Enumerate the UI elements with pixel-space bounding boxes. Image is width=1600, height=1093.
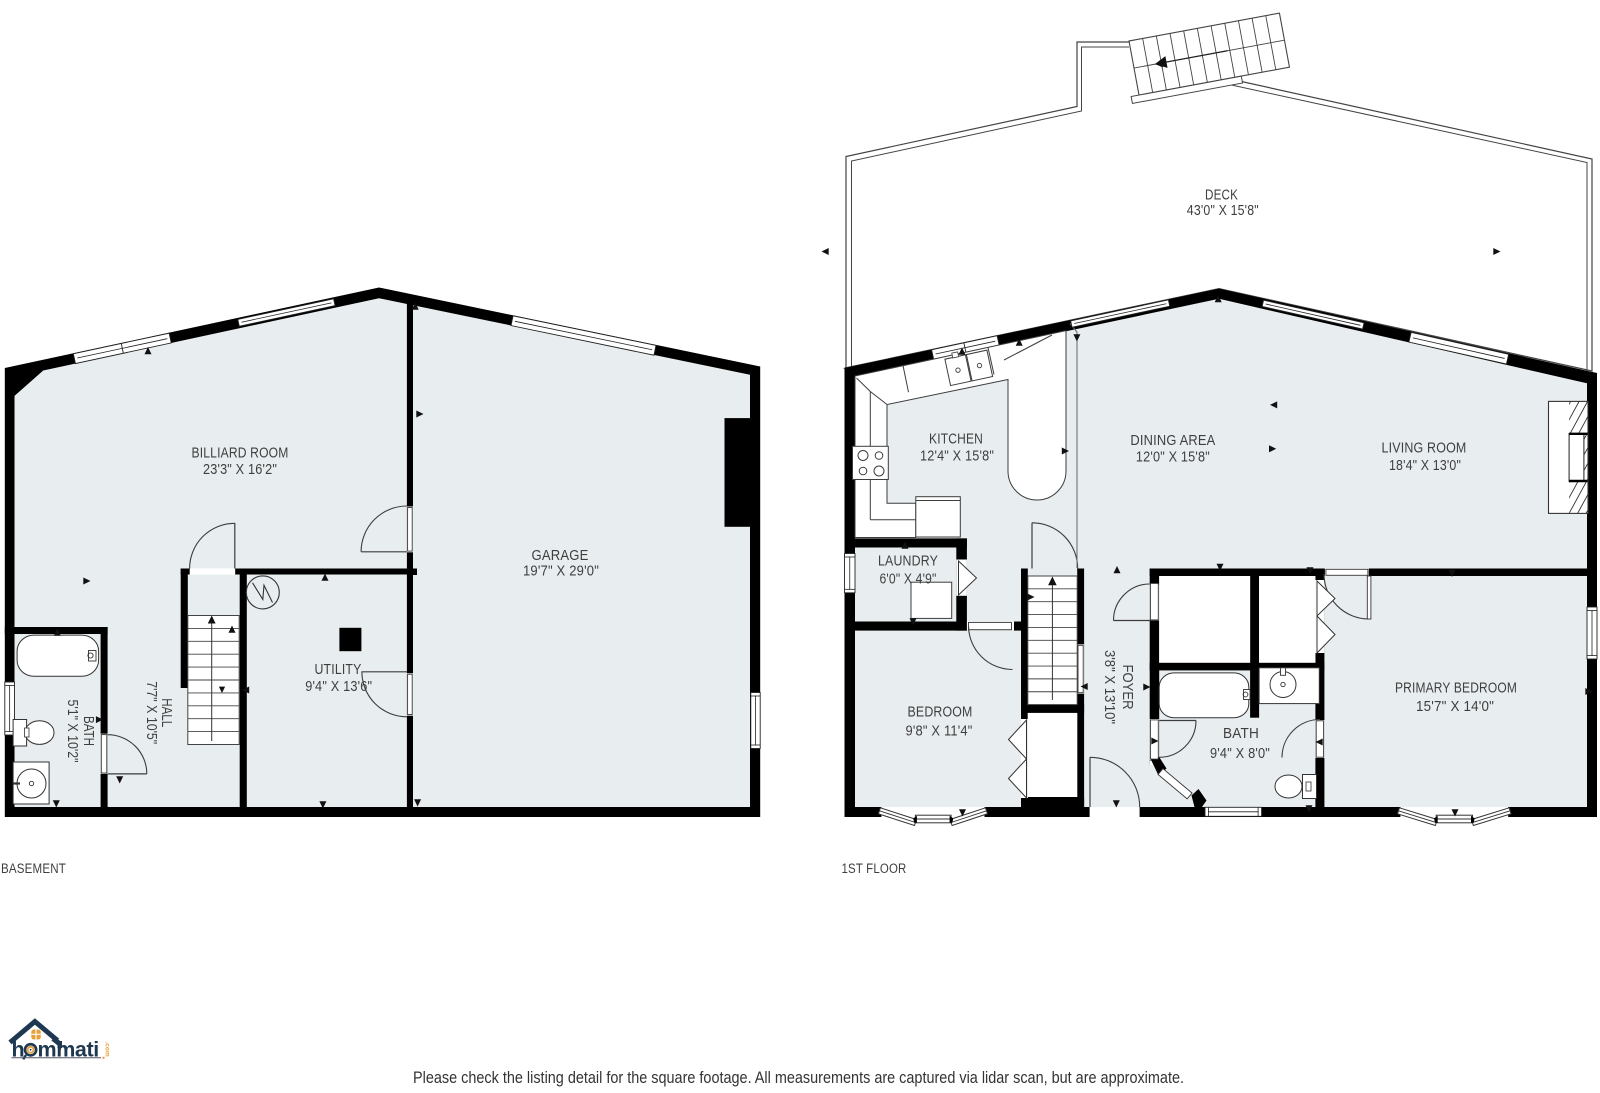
svg-text:9'8" X 11'4": 9'8" X 11'4" <box>906 724 973 740</box>
svg-text:BILLIARD ROOM: BILLIARD ROOM <box>192 445 289 461</box>
svg-text:PRIMARY BEDROOM: PRIMARY BEDROOM <box>1395 681 1517 697</box>
svg-text:DECK: DECK <box>1205 188 1238 204</box>
svg-text:UTILITY: UTILITY <box>315 662 362 678</box>
svg-text:.com: .com <box>104 1042 111 1057</box>
svg-text:19'7" X 29'0": 19'7" X 29'0" <box>523 564 599 580</box>
svg-text:LAUNDRY: LAUNDRY <box>878 554 938 570</box>
svg-text:5'1" X 10'2": 5'1" X 10'2" <box>64 700 80 763</box>
svg-text:BATH: BATH <box>1223 726 1259 742</box>
svg-text:GARAGE: GARAGE <box>532 548 589 564</box>
svg-text:KITCHEN: KITCHEN <box>929 432 983 448</box>
svg-text:18'4" X 13'0": 18'4" X 13'0" <box>1389 458 1461 474</box>
svg-text:12'0" X 15'8": 12'0" X 15'8" <box>1136 450 1210 466</box>
svg-text:3'8" X 13'10": 3'8" X 13'10" <box>1101 650 1117 724</box>
svg-text:1ST FLOOR: 1ST FLOOR <box>842 861 907 876</box>
svg-text:BASEMENT: BASEMENT <box>1 861 66 876</box>
svg-text:9'4" X 8'0": 9'4" X 8'0" <box>1210 746 1270 762</box>
svg-text:DINING AREA: DINING AREA <box>1130 433 1215 449</box>
svg-text:6'0" X 4'9": 6'0" X 4'9" <box>880 572 937 588</box>
svg-text:43'0" X 15'8": 43'0" X 15'8" <box>1187 203 1259 219</box>
svg-text:FOYER: FOYER <box>1119 665 1135 710</box>
svg-text:7'7" X 10'5": 7'7" X 10'5" <box>143 681 159 744</box>
svg-text:Please check the listing detai: Please check the listing detail for the … <box>413 1068 1184 1087</box>
svg-text:LIVING ROOM: LIVING ROOM <box>1382 441 1467 457</box>
svg-text:HALL: HALL <box>158 698 174 727</box>
svg-text:12'4" X 15'8": 12'4" X 15'8" <box>920 449 994 465</box>
svg-text:15'7" X 14'0": 15'7" X 14'0" <box>1416 699 1494 715</box>
svg-text:23'3" X 16'2": 23'3" X 16'2" <box>203 462 277 478</box>
svg-text:9'4" X 13'6": 9'4" X 13'6" <box>305 679 372 695</box>
svg-text:BATH: BATH <box>80 716 96 746</box>
svg-text:BEDROOM: BEDROOM <box>908 705 973 721</box>
